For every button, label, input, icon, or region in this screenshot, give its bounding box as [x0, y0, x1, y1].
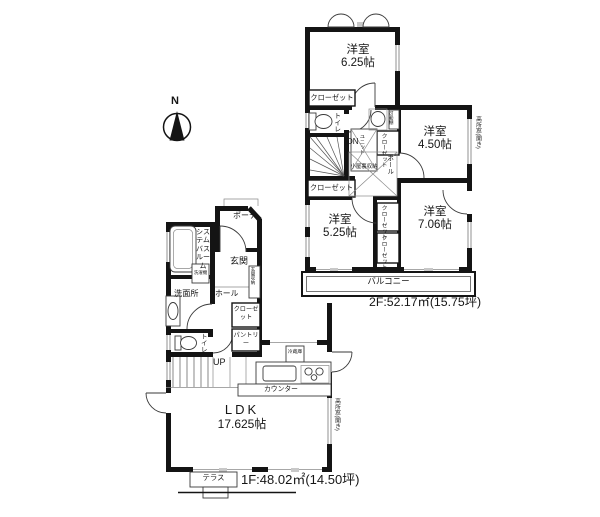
room-name: 洋室 [396, 206, 474, 219]
floor1-area-label: 1F:48.02㎡(14.50坪) [241, 473, 360, 488]
stairs-up-label: UP [213, 357, 226, 367]
washroom-label: 洗面所 [174, 289, 199, 298]
room-label-7-06: 洋室 7.06帖 [396, 206, 474, 232]
terrace-label: テラス [190, 474, 237, 482]
closet-label-small: クローゼット [378, 133, 388, 153]
casement-window-icon [363, 14, 389, 27]
counter-label: カウンター [250, 386, 312, 394]
floor-plan-canvas: 洋室 6.25帖 洋室 4.50帖 洋室 5.25帖 洋室 7.06帖 クローゼ… [0, 0, 600, 517]
room-size: 5.25帖 [302, 227, 378, 240]
porch-label: ポーチ [228, 212, 262, 221]
high-window-label-1f: 高所窓(開き) [333, 398, 339, 446]
room-label-6-25: 洋室 6.25帖 [318, 44, 398, 70]
stairs-down-icon [310, 137, 344, 176]
room-name: 洋室 [318, 44, 398, 57]
attic-storage-label: 小屋裏収納 [346, 164, 382, 170]
porch-canopy-line [224, 199, 258, 206]
toilet-label-1f: トイレ [199, 333, 206, 354]
north-arrow-icon [164, 111, 191, 141]
stairs-down-label: DN [347, 138, 359, 147]
kitchen-sink-icon [263, 366, 296, 381]
room-size: 7.06帖 [396, 219, 474, 232]
washer-label: 洗濯機 [191, 271, 210, 276]
room-label-4-50: 洋室 4.50帖 [398, 126, 472, 152]
room-name: LDK [200, 403, 284, 418]
closet-label-small: クローゼット [378, 235, 388, 257]
room-name: 洋室 [398, 126, 472, 139]
attic-unit-label: ユニット [358, 134, 364, 160]
room-label-5-25: 洋室 5.25帖 [302, 214, 378, 240]
entrance-label: 玄関 [221, 256, 257, 266]
hall-label-1f: ホール [215, 290, 238, 299]
closet-label: クローゼット [309, 184, 354, 192]
toilet-label-2f: トイレ [332, 112, 340, 133]
closet-label-small: クローゼット [378, 205, 388, 227]
toilet-icon-1f [175, 336, 197, 350]
casement-window-icon [328, 14, 354, 27]
hall-label-2f: ホール [386, 155, 393, 181]
floor2-area-label: 2F:52.17㎡(15.75坪) [369, 296, 481, 310]
floor-plan-graphics [0, 0, 600, 517]
stairs-up-icon [166, 357, 256, 388]
basin-icon-2f [369, 109, 387, 130]
sink-icon-washroom [166, 296, 180, 326]
room-size: 17.625帖 [200, 418, 284, 431]
pantry-label: パントリー [233, 332, 259, 348]
floor1-graphics [146, 199, 352, 498]
room-size: 6.25帖 [318, 57, 398, 70]
north-label: N [171, 95, 179, 107]
entrance-storage-label: 玄関収納 [250, 267, 255, 298]
closet-label: クローゼット [310, 94, 354, 102]
toilet-icon-2f [309, 113, 332, 130]
room-name: 洋室 [302, 214, 378, 227]
balcony-label: バルコニー [330, 277, 447, 287]
bathroom-label: システムバスルーム [195, 229, 211, 271]
closet-label-1f: クローゼット [233, 306, 259, 322]
shelf-label: 可動棚 [389, 111, 394, 130]
fridge-label: 冷蔵庫 [286, 350, 304, 355]
ldk-label: LDK 17.625帖 [200, 403, 284, 431]
room-size: 4.50帖 [398, 139, 472, 152]
high-window-label-2f: 高所窓(開き) [474, 116, 480, 168]
